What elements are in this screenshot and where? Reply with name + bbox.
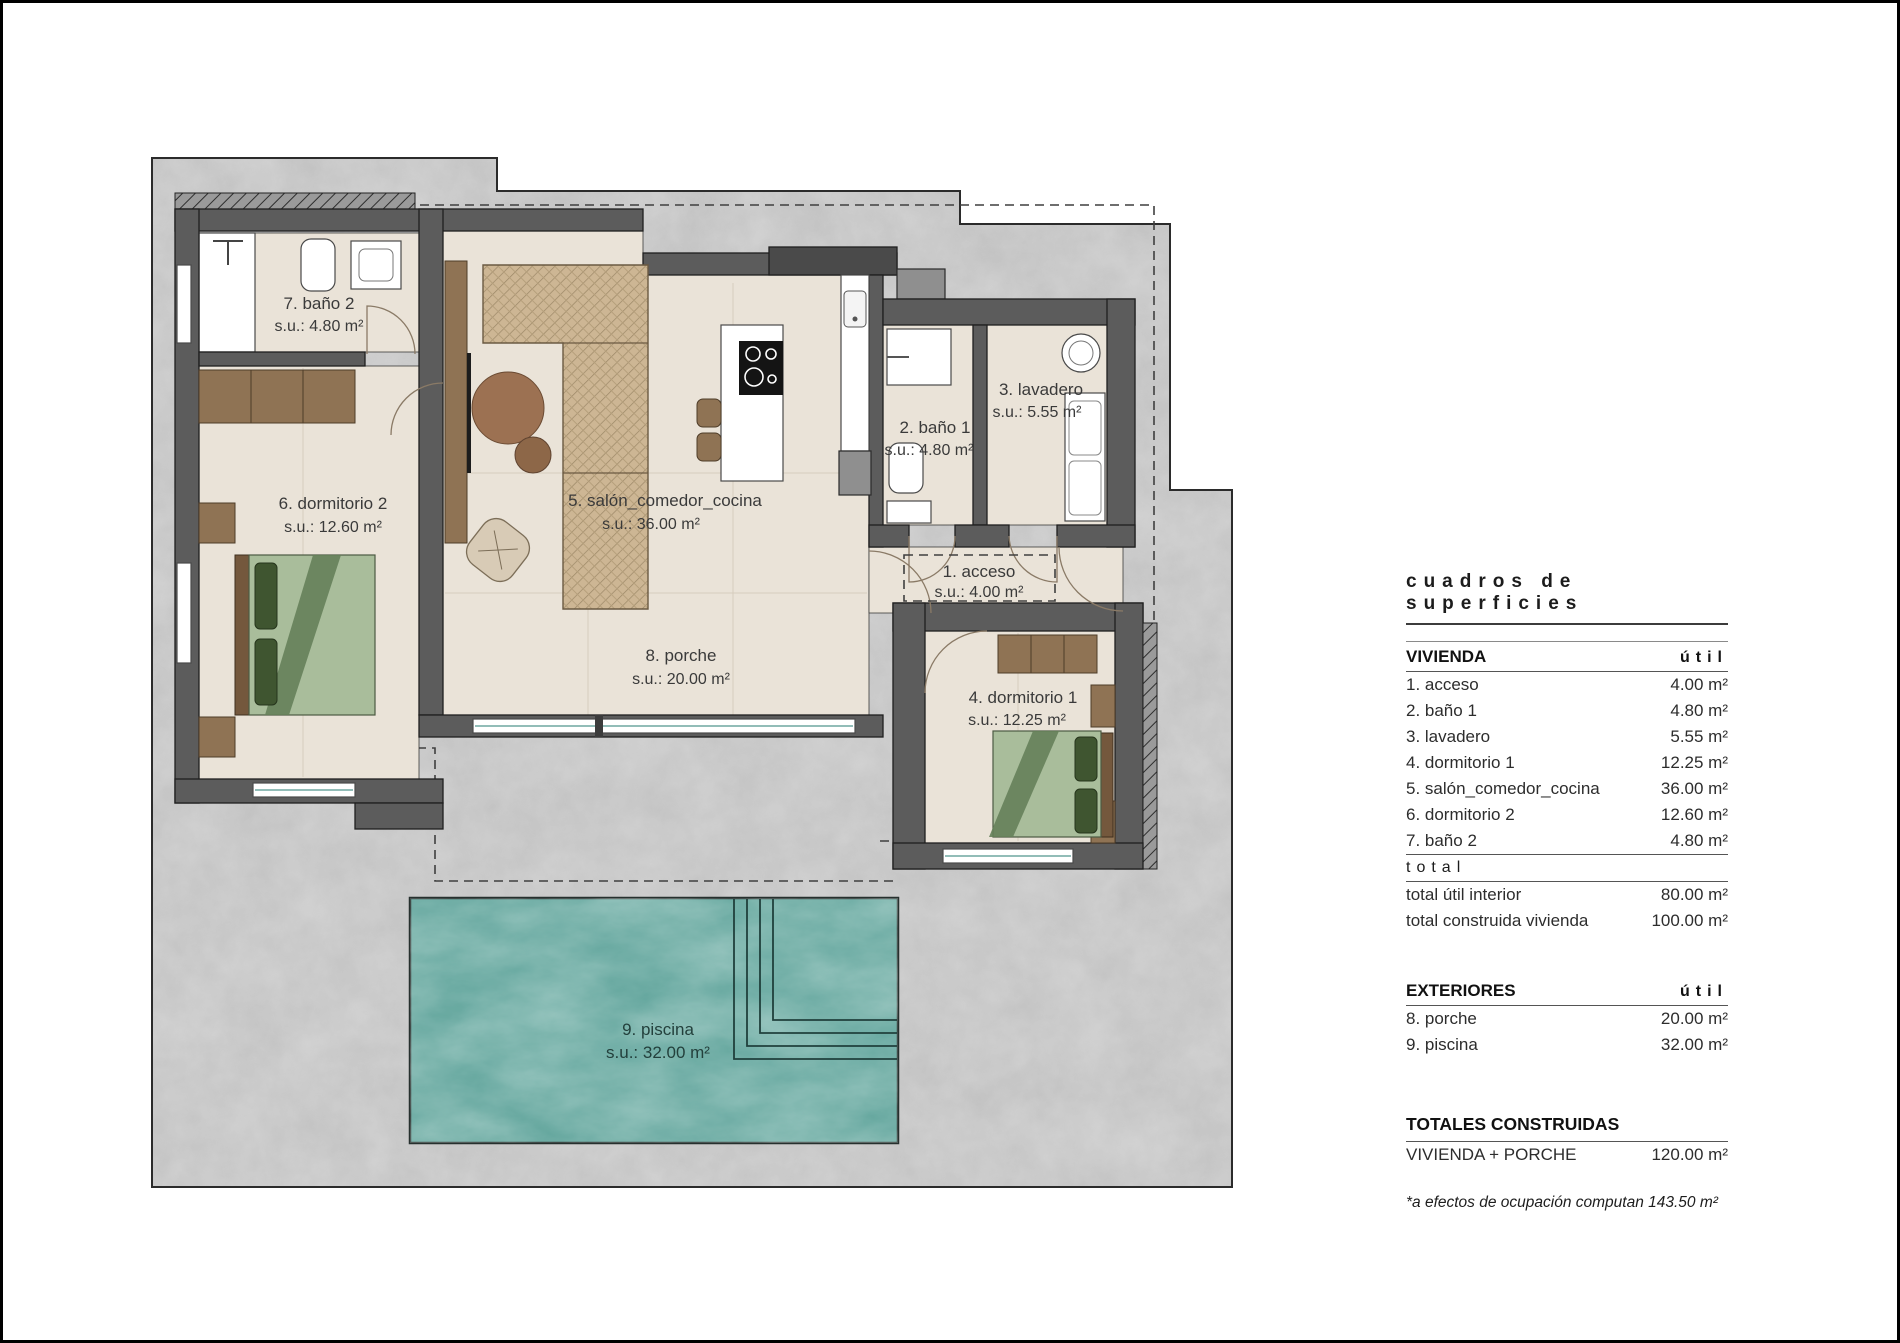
table-row: 2. baño 1 4.80 m²: [1406, 698, 1728, 724]
surface-table-title: cuadros de superficies: [1406, 571, 1728, 625]
spacer: [1406, 1168, 1728, 1194]
wall-dorm2-salon: [419, 209, 443, 715]
washing-machine-icon: [1062, 334, 1100, 372]
dormitorio2-area: s.u.: 12.60 m²: [284, 519, 382, 536]
dorm1-pillow: [1075, 737, 1097, 781]
spacer: [1406, 1058, 1728, 1114]
row-value: 4.80 m²: [1670, 828, 1728, 854]
occupancy-note: *a efectos de ocupación computan 143.50 …: [1406, 1194, 1728, 1212]
row-value: 20.00 m²: [1661, 1006, 1728, 1032]
row-value: 4.00 m²: [1670, 672, 1728, 698]
wall-right-block-east: [1107, 299, 1135, 547]
dormitorio1-area: s.u.: 12.25 m²: [968, 712, 1066, 729]
wall-banio2-dorm2-divider: [199, 352, 365, 366]
round-rug-large: [472, 372, 544, 444]
wall-right-block-north: [883, 299, 1135, 325]
wall-left-wing-step: [355, 803, 443, 829]
row-label: VIVIENDA + PORCHE: [1406, 1142, 1577, 1168]
dorm1-nightstand-top: [1091, 685, 1115, 727]
drain: [853, 317, 858, 322]
wall-right-block-south-c: [1057, 525, 1135, 547]
dorm2-pillow: [255, 639, 277, 705]
row-value: 5.55 m²: [1670, 724, 1728, 750]
table-row: 8. porche 20.00 m²: [1406, 1006, 1728, 1032]
row-label: total útil interior: [1406, 882, 1521, 908]
lavadero-label: 3. lavadero: [999, 380, 1083, 399]
stool: [697, 399, 721, 427]
row-label: 9. piscina: [1406, 1032, 1478, 1058]
dorm2-bed: [235, 555, 375, 715]
table-row: 5. salón_comedor_cocina 36.00 m²: [1406, 776, 1728, 802]
dorm1-hatch-strip: [1143, 623, 1157, 869]
dormitorio1-furniture: [989, 635, 1115, 843]
exteriores-header-row: EXTERIORES útil: [1406, 976, 1728, 1006]
porche-label: 8. porche: [646, 646, 717, 665]
dorm2-nightstand-top: [199, 503, 235, 543]
table-row: 4. dormitorio 1 12.25 m²: [1406, 750, 1728, 776]
divider: [1406, 625, 1728, 642]
cooktop-icon: [739, 341, 783, 395]
row-value: 120.00 m²: [1651, 1142, 1728, 1168]
wall-banio1-lavadero-divider: [973, 325, 987, 525]
dormitorio1-label: 4. dormitorio 1: [969, 688, 1078, 707]
row-label: 8. porche: [1406, 1006, 1477, 1032]
banio2-label: 7. baño 2: [284, 294, 355, 313]
tv-icon: [467, 353, 471, 473]
kitchen-sink-run: [839, 275, 871, 495]
table-row: 9. piscina 32.00 m²: [1406, 1032, 1728, 1058]
table-row: 7. baño 2 4.80 m²: [1406, 828, 1728, 855]
table-row: 3. lavadero 5.55 m²: [1406, 724, 1728, 750]
surface-table: cuadros de superficies VIVIENDA útil 1. …: [1406, 571, 1728, 1212]
row-label: total construida vivienda: [1406, 908, 1588, 934]
table-row: VIVIENDA + PORCHE 120.00 m²: [1406, 1142, 1728, 1168]
banio1-shower-tray: [887, 501, 931, 523]
tv-sideboard: [445, 261, 467, 543]
wall-salon-east: [869, 275, 883, 547]
spacer: [1406, 934, 1728, 976]
banio1-area: s.u.: 4.80 m²: [885, 442, 975, 459]
piscina-label: 9. piscina: [622, 1020, 694, 1039]
vivienda-header: VIVIENDA: [1406, 647, 1486, 667]
row-value: 36.00 m²: [1661, 776, 1728, 802]
wall-right-block-south-b: [955, 525, 1009, 547]
row-value: 4.80 m²: [1670, 698, 1728, 724]
row-value: 100.00 m²: [1651, 908, 1728, 934]
piscina-area: s.u.: 32.00 m²: [606, 1043, 710, 1062]
stool: [697, 433, 721, 461]
row-value: 80.00 m²: [1661, 882, 1728, 908]
row-label: 6. dormitorio 2: [1406, 802, 1515, 828]
table-row: 1. acceso 4.00 m²: [1406, 672, 1728, 698]
vivienda-header-row: VIVIENDA útil: [1406, 642, 1728, 672]
row-label: 2. baño 1: [1406, 698, 1477, 724]
dorm2-nightstand-bottom: [199, 717, 235, 757]
dorm1-closet: [998, 635, 1097, 673]
entry-canopy: [769, 247, 897, 275]
entry-step: [897, 269, 945, 299]
acceso-label: 1. acceso: [943, 562, 1016, 581]
table-row: 6. dormitorio 2 12.60 m²: [1406, 802, 1728, 828]
row-label: 3. lavadero: [1406, 724, 1490, 750]
round-rug-small: [515, 437, 551, 473]
row-value: 12.25 m²: [1661, 750, 1728, 776]
dorm1-pillow: [1075, 789, 1097, 833]
banio2-area: s.u.: 4.80 m²: [275, 318, 365, 335]
dorm2-window-west: [177, 563, 191, 663]
row-label: 4. dormitorio 1: [1406, 750, 1515, 776]
salon-area: s.u.: 36.00 m²: [602, 516, 700, 533]
salon-label: 5. salón_comedor_cocina: [568, 491, 762, 510]
drawing-sheet: 7. baño 2 s.u.: 4.80 m² 6. dormitorio 2 …: [0, 0, 1900, 1343]
retaining-wall-hatch: [175, 193, 415, 209]
wall-right-block-south-a: [869, 525, 909, 547]
wall-dorm1-east: [1115, 603, 1143, 869]
wall-top-left: [175, 209, 643, 231]
wall-dorm1-west: [893, 603, 925, 869]
dorm2-closet: [199, 370, 355, 423]
total-section-label: total: [1406, 855, 1728, 882]
dorm1-bed: [989, 731, 1113, 837]
row-label: 5. salón_comedor_cocina: [1406, 776, 1600, 802]
acceso-area: s.u.: 4.00 m²: [935, 584, 1025, 601]
kitchen-base-cabinet: [839, 451, 871, 495]
kitchen-sink-icon: [844, 291, 866, 327]
table-row: total útil interior 80.00 m²: [1406, 882, 1728, 908]
row-value: 12.60 m²: [1661, 802, 1728, 828]
salon-window-mullion: [595, 715, 603, 737]
table-row: total construida vivienda 100.00 m²: [1406, 908, 1728, 934]
exteriores-header: EXTERIORES: [1406, 981, 1516, 1001]
util-column-header: útil: [1680, 983, 1728, 1001]
banio1-label: 2. baño 1: [900, 418, 971, 437]
totales-construidas-header: TOTALES CONSTRUIDAS: [1406, 1114, 1728, 1142]
row-label: 1. acceso: [1406, 672, 1479, 698]
row-label: 7. baño 2: [1406, 828, 1477, 854]
dorm2-pillow: [255, 563, 277, 629]
row-value: 32.00 m²: [1661, 1032, 1728, 1058]
util-column-header: útil: [1680, 649, 1728, 667]
lavadero-area: s.u.: 5.55 m²: [993, 404, 1083, 421]
toilet-icon: [301, 239, 335, 291]
banio2-window-west: [177, 265, 191, 343]
dormitorio2-label: 6. dormitorio 2: [279, 494, 388, 513]
porche-area: s.u.: 20.00 m²: [632, 671, 730, 688]
